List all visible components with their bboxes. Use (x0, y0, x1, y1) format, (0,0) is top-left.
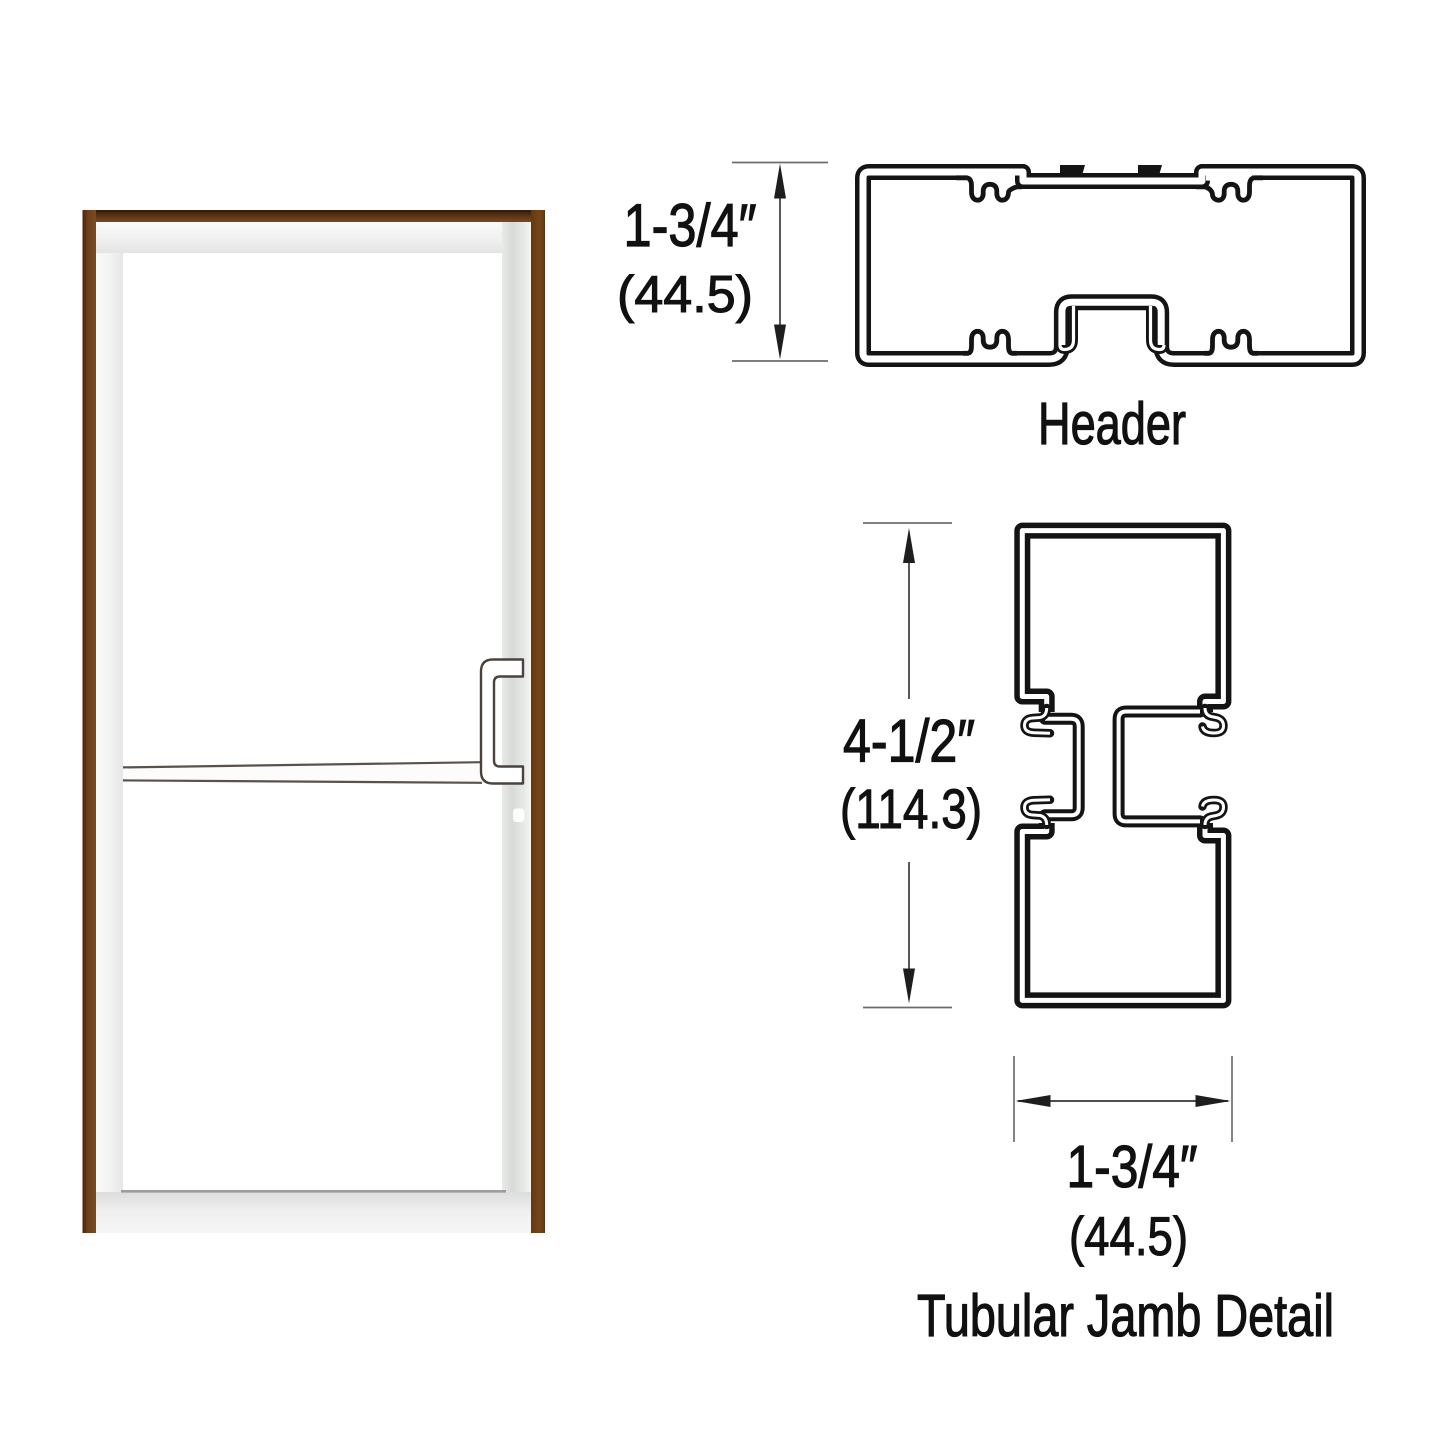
svg-text:(44.5): (44.5) (617, 266, 753, 324)
svg-text:1-3/4″: 1-3/4″ (1067, 1134, 1198, 1200)
svg-text:1-3/4″: 1-3/4″ (624, 192, 757, 259)
svg-text:Header: Header (1038, 391, 1186, 457)
svg-text:4-1/2″: 4-1/2″ (843, 708, 975, 775)
svg-text:Tubular Jamb Detail: Tubular Jamb Detail (917, 1283, 1334, 1349)
svg-text:(114.3): (114.3) (840, 777, 982, 840)
svg-text:(44.5): (44.5) (1069, 1205, 1188, 1267)
